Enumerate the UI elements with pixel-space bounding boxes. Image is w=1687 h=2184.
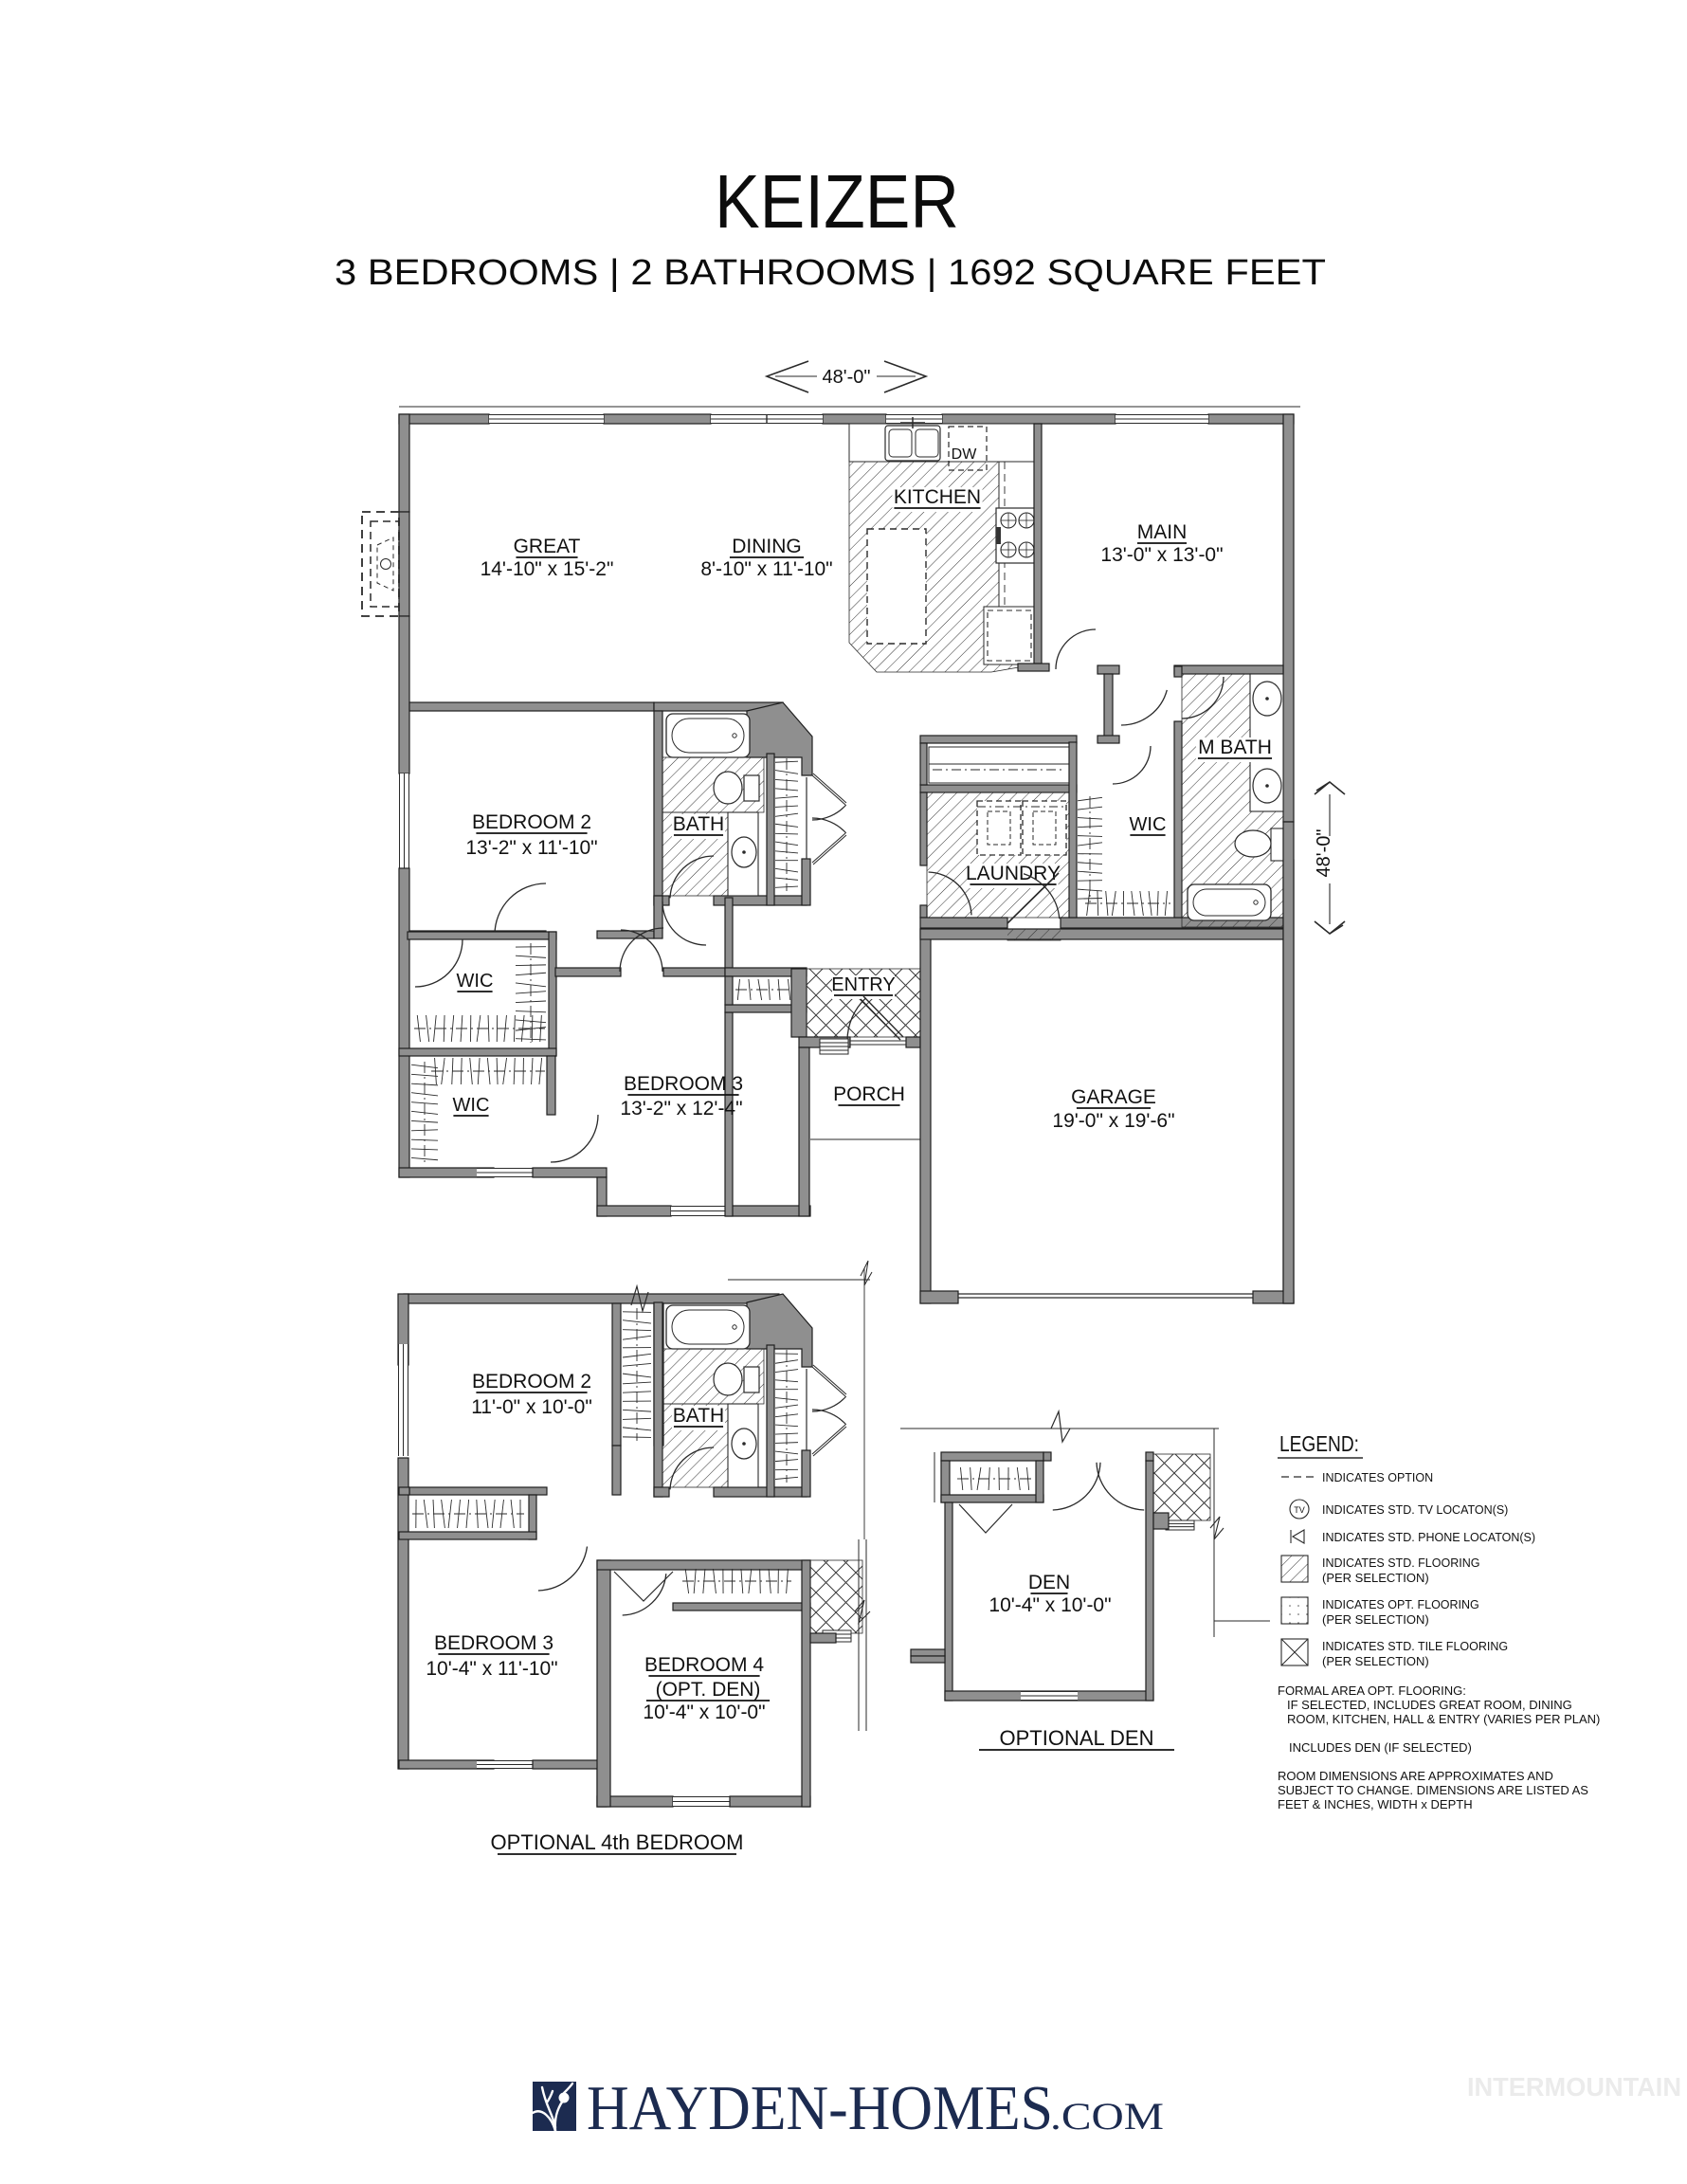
svg-text:19'-0" x 19'-6": 19'-0" x 19'-6"	[1052, 1110, 1174, 1132]
svg-text:(PER SELECTION): (PER SELECTION)	[1322, 1612, 1429, 1627]
svg-text:WIC: WIC	[457, 971, 494, 992]
svg-text:HAYDEN-HOMES: HAYDEN-HOMES	[587, 2073, 1053, 2143]
svg-text:BEDROOM 3: BEDROOM 3	[434, 1632, 553, 1654]
svg-text:10'-4" x 11'-10": 10'-4" x 11'-10"	[426, 1658, 557, 1680]
svg-text:14'-10" x 15'-2": 14'-10" x 15'-2"	[481, 558, 614, 580]
svg-text:INDICATES STD. TILE FLOORING: INDICATES STD. TILE FLOORING	[1322, 1640, 1508, 1653]
svg-text:(PER SELECTION): (PER SELECTION)	[1322, 1571, 1429, 1585]
svg-text:10'-4" x 10'-0": 10'-4" x 10'-0"	[989, 1594, 1111, 1616]
svg-text:KEIZER: KEIZER	[715, 159, 959, 244]
svg-text:GARAGE: GARAGE	[1071, 1086, 1156, 1108]
svg-text:FORMAL AREA OPT. FLOORING:: FORMAL AREA OPT. FLOORING:	[1278, 1683, 1466, 1698]
svg-text:3 BEDROOMS | 2 BATHROOMS | 169: 3 BEDROOMS | 2 BATHROOMS | 1692 SQUARE F…	[335, 253, 1326, 293]
svg-text:BEDROOM 2: BEDROOM 2	[472, 811, 591, 833]
svg-text:OPTIONAL DEN: OPTIONAL DEN	[1000, 1726, 1154, 1750]
svg-text:WIC: WIC	[453, 1095, 490, 1116]
svg-text:FEET & INCHES, WIDTH x DEPTH: FEET & INCHES, WIDTH x DEPTH	[1278, 1797, 1473, 1811]
svg-text:(OPT. DEN): (OPT. DEN)	[656, 1679, 761, 1701]
svg-text:13'-2" x 11'-10": 13'-2" x 11'-10"	[465, 837, 597, 859]
svg-text:(PER SELECTION): (PER SELECTION)	[1322, 1654, 1429, 1668]
svg-text:INTERMOUNTAIN: INTERMOUNTAIN	[1467, 2072, 1681, 2102]
svg-text:KITCHEN: KITCHEN	[894, 486, 981, 508]
svg-text:11'-0" x 10'-0": 11'-0" x 10'-0"	[471, 1396, 592, 1418]
svg-text:INCLUDES DEN (IF SELECTED): INCLUDES DEN (IF SELECTED)	[1289, 1740, 1472, 1755]
svg-text:DINING: DINING	[732, 536, 802, 557]
svg-text:13'-2" x 12'-4": 13'-2" x 12'-4"	[620, 1098, 742, 1119]
svg-text:10'-4" x 10'-0": 10'-4" x 10'-0"	[643, 1702, 765, 1723]
svg-text:INDICATES OPTION: INDICATES OPTION	[1322, 1471, 1433, 1484]
svg-text:ROOM, KITCHEN, HALL & ENTRY (V: ROOM, KITCHEN, HALL & ENTRY (VARIES PER …	[1287, 1712, 1600, 1726]
svg-text:BATH: BATH	[673, 1405, 724, 1427]
svg-text:INDICATES OPT. FLOORING: INDICATES OPT. FLOORING	[1322, 1598, 1479, 1611]
svg-text:M BATH: M BATH	[1198, 737, 1272, 758]
svg-text:INDICATES STD. PHONE LOCATON(S: INDICATES STD. PHONE LOCATON(S)	[1322, 1531, 1535, 1544]
svg-text:ENTRY: ENTRY	[831, 974, 895, 995]
svg-text:DEN: DEN	[1028, 1572, 1070, 1593]
svg-text:LAUNDRY: LAUNDRY	[966, 863, 1061, 884]
svg-text:TV: TV	[1294, 1505, 1305, 1515]
svg-text:BATH: BATH	[673, 813, 724, 835]
svg-text:13'-0" x 13'-0": 13'-0" x 13'-0"	[1100, 544, 1223, 566]
svg-text:INDICATES STD. TV LOCATON(S): INDICATES STD. TV LOCATON(S)	[1322, 1503, 1508, 1517]
svg-text:MAIN: MAIN	[1137, 521, 1188, 543]
svg-text:48'-0": 48'-0"	[823, 367, 871, 388]
svg-text:DW: DW	[952, 446, 978, 463]
svg-text:BEDROOM 3: BEDROOM 3	[624, 1073, 743, 1095]
svg-text:WIC: WIC	[1130, 814, 1167, 835]
svg-text:8'-10" x 11'-10": 8'-10" x 11'-10"	[700, 558, 832, 580]
svg-text:48'-0": 48'-0"	[1314, 829, 1334, 878]
svg-text:.COM: .COM	[1050, 2095, 1164, 2138]
svg-text:IF SELECTED, INCLUDES GREAT RO: IF SELECTED, INCLUDES GREAT ROOM, DINING	[1287, 1698, 1572, 1712]
svg-text:BEDROOM 2: BEDROOM 2	[472, 1371, 591, 1392]
svg-text:OPTIONAL 4th BEDROOM: OPTIONAL 4th BEDROOM	[491, 1830, 744, 1854]
svg-text:PORCH: PORCH	[833, 1083, 905, 1105]
svg-text:LEGEND:: LEGEND:	[1279, 1431, 1359, 1456]
svg-text:ROOM DIMENSIONS ARE APPROXIMAT: ROOM DIMENSIONS ARE APPROXIMATES AND	[1278, 1769, 1553, 1783]
svg-text:INDICATES STD. FLOORING: INDICATES STD. FLOORING	[1322, 1556, 1479, 1570]
svg-text:GREAT: GREAT	[514, 536, 581, 557]
svg-text:SUBJECT TO CHANGE. DIMENSIONS: SUBJECT TO CHANGE. DIMENSIONS ARE LISTED…	[1278, 1783, 1588, 1797]
svg-text:BEDROOM 4: BEDROOM 4	[644, 1654, 764, 1676]
